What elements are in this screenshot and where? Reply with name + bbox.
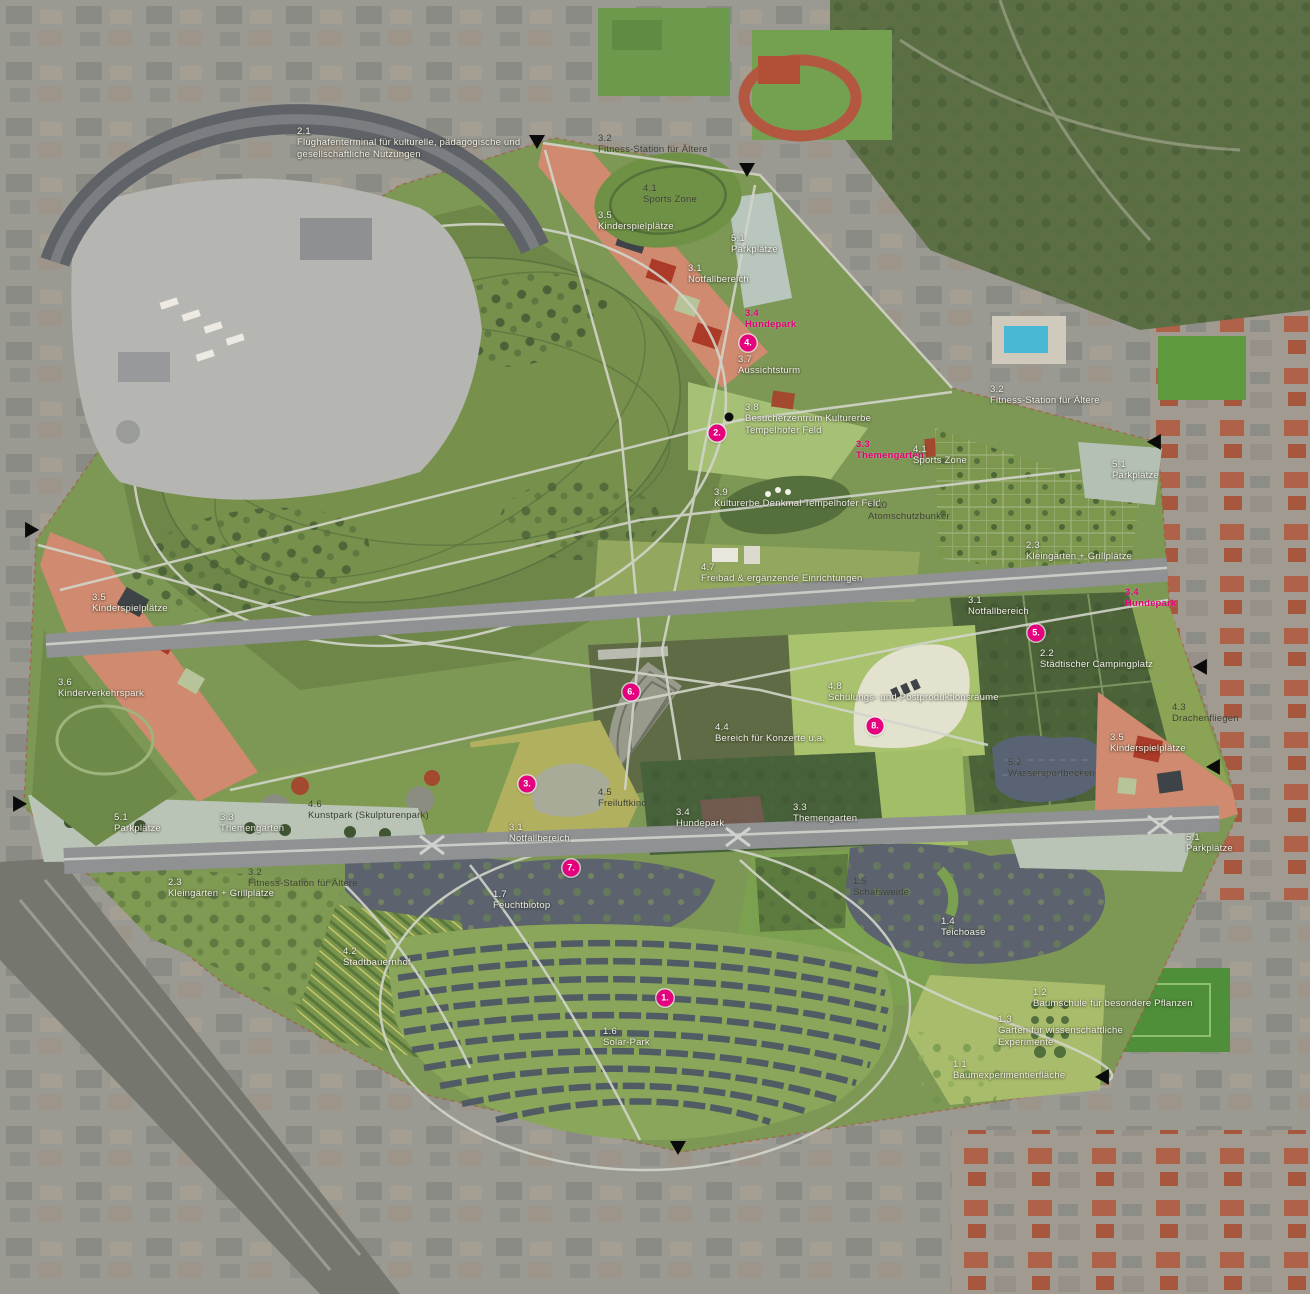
zone-label-1-5: 1.5Schafsweide [853,876,909,899]
zone-label-2-3: 2.3Kleingärten + Grillplätze [1026,540,1132,563]
zone-name: Bereich für Konzerte u.a. [715,733,825,744]
zone-code: 3.3 [220,812,284,823]
zone-name: Parkplätze [731,244,778,255]
numbered-marker[interactable]: 8. [867,718,884,735]
zone-label-3-1: 3.1Notfallbereich [968,595,1029,618]
zone-label-3-6: 3.6Kinderverkehrspark [58,677,144,700]
zone-label-5-1: 5.1Parkplätze [1186,832,1233,855]
zone-name: Garten für wissenschaftliche Experimente [998,1025,1123,1047]
zone-name: Parkplätze [1186,843,1233,854]
zone-label-1-1: 1.1Baumexperimentierfläche [953,1059,1065,1082]
zone-code: 1.1 [953,1059,1065,1070]
zone-label-3-10: 3.10Atomschutzbunker [868,500,950,523]
zone-code: 4.3 [1172,702,1239,713]
zone-label-4-3: 4.3Drachenfliegen [1172,702,1239,725]
zone-name: Atomschutzbunker [868,511,950,522]
zone-label-3-8: 3.8Besucherzentrum Kulturerbe Tempelhofe… [745,402,910,436]
zone-label-2-2: 2.2Städtischer Campingplatz [1040,648,1153,671]
zone-name: Drachenfliegen [1172,713,1239,724]
zone-code: 1.6 [603,1026,650,1037]
zone-name: Themengarten [793,813,857,824]
zone-code: 5.1 [731,233,778,244]
zone-name: Kleingärten + Grillplätze [168,888,274,899]
zone-label-3-5: 3.5Kinderspielplätze [598,210,674,233]
boundary-marker-icon [1206,759,1220,775]
zone-code: 1.2 [1033,987,1193,998]
zone-label-4-6: 4.6Kunstpark (Skulpturenpark) [308,799,429,822]
zone-name: Fitness-Station für Ältere [598,144,708,155]
numbered-marker[interactable]: 5. [1028,625,1045,642]
zone-code: 4.2 [343,946,411,957]
zone-code: 4.6 [308,799,429,810]
zone-name: Kleingärten + Grillplätze [1026,551,1132,562]
boundary-marker-icon [13,796,27,812]
zone-name: Parkplätze [1112,470,1159,481]
numbered-marker[interactable]: 2. [709,425,726,442]
numbered-marker[interactable]: 1. [657,990,674,1007]
zone-name: Wassersportbecken [1008,768,1095,779]
zone-code: 3.4 [676,807,724,818]
zone-label-3-3: 3.3Themengarten [793,802,857,825]
zone-label-3-3: 3.3Themengarten [220,812,284,835]
zone-name: Fitness-Station für Ältere [248,878,358,889]
zone-label-5-1: 5.1Parkplätze [114,812,161,835]
zone-code: 3.6 [58,677,144,688]
numbered-marker[interactable]: 4. [740,335,757,352]
zone-code: 4.1 [643,183,697,194]
zone-name: Freibad & ergänzende Einrichtungen [701,573,863,584]
zone-name: Aussichtsturm [738,365,800,376]
zone-name: Feuchtbiotop [493,900,550,911]
numbered-marker[interactable]: 7. [563,860,580,877]
zone-code: 3.8 [745,402,910,413]
zone-code: 4.1 [913,444,967,455]
zone-name: Flughafenterminal für kulturelle, pädago… [297,137,520,159]
zone-label-4-4: 4.4Bereich für Konzerte u.a. [715,722,825,745]
zone-code: 3.5 [1110,732,1186,743]
zone-name: Teichoase [941,927,986,938]
zone-code: 3.5 [598,210,674,221]
zone-code: 5.1 [114,812,161,823]
boundary-marker-icon [670,1141,686,1155]
zone-name: Städtischer Campingplatz [1040,659,1153,670]
zone-code: 3.7 [738,354,800,365]
zone-label-4-2: 4.2Stadtbauernhof [343,946,411,969]
zone-code: 1.5 [853,876,909,887]
boundary-marker-icon [739,163,755,177]
zone-name: Hundepark [1125,598,1176,609]
zone-name: Notfallbereich [968,606,1029,617]
numbered-marker[interactable]: 6. [623,684,640,701]
zone-code: 5.1 [1186,832,1233,843]
zone-code: 2.3 [1026,540,1132,551]
zone-label-4-5: 4.5Freiluftkino [598,787,647,810]
zone-code: 3.2 [990,384,1100,395]
zone-label-3-4: 3.4Hundepark [1125,587,1176,610]
zone-code: 3.2 [598,133,708,144]
zone-code: 1.3 [998,1014,1173,1025]
numbered-marker[interactable]: 3. [519,776,536,793]
zone-code: 3.4 [745,308,796,319]
zone-label-4-1: 4.1Sports Zone [643,183,697,206]
zone-name: Hundepark [745,319,796,330]
zone-label-3-4: 3.4Hundepark [745,308,796,331]
zone-name: Notfallbereich [688,274,749,285]
zone-label-1-2: 1.2Baumschule für besondere Pflanzen [1033,987,1193,1010]
zone-label-3-5: 3.5Kinderspielplätze [1110,732,1186,755]
zone-name: Kinderverkehrspark [58,688,144,699]
zone-name: Besucherzentrum Kulturerbe Tempelhofer F… [745,413,871,435]
zone-label-3-9: 3.9Kulturerbe Denkmal Tempelhofer Feld [714,487,881,510]
zone-code: 4.4 [715,722,825,733]
zone-label-3-1: 3.1Notfallbereich [509,822,570,845]
zone-label-3-4: 3.4Hundepark [676,807,724,830]
zone-name: Kinderspielplätze [1110,743,1186,754]
zone-label-5-1: 5.1Parkplätze [1112,459,1159,482]
zone-name: Themengarten [220,823,284,834]
zone-label-1-7: 1.7Feuchtbiotop [493,889,550,912]
zone-name: Parkplätze [114,823,161,834]
zone-label-3-1: 3.1Notfallbereich [688,263,749,286]
annotation-layer: 2.1Flughafenterminal für kulturelle, päd… [0,0,1310,1294]
boundary-marker-icon [25,522,39,538]
zone-label-3-7: 3.7Aussichtsturm [738,354,800,377]
zone-label-3-5: 3.5Kinderspielplätze [92,592,168,615]
zone-code: 3.1 [968,595,1029,606]
zone-code: 3.10 [868,500,950,511]
zone-name: Stadtbauernhof [343,957,411,968]
zone-name: Kunstpark (Skulpturenpark) [308,810,429,821]
zone-label-4-1: 4.1Sports Zone [913,444,967,467]
zone-code: 5.1 [1112,459,1159,470]
zone-label-4-7: 4.7Freibad & ergänzende Einrichtungen [701,562,863,585]
zone-name: Kulturerbe Denkmal Tempelhofer Feld [714,498,881,509]
zone-name: Notfallbereich [509,833,570,844]
zone-name: Schafsweide [853,887,909,898]
zone-label-1-6: 1.6Solar-Park [603,1026,650,1049]
zone-name: Sports Zone [643,194,697,205]
zone-code: 3.1 [688,263,749,274]
boundary-marker-icon [1193,659,1207,675]
zone-label-3-2: 3.2Fitness-Station für Ältere [598,133,708,156]
zone-code: 2.2 [1040,648,1153,659]
zone-label-1-4: 1.4Teichoase [941,916,986,939]
zone-code: 1.4 [941,916,986,927]
zone-code: 1.7 [493,889,550,900]
zone-code: 5.2 [1008,757,1095,768]
zone-label-5-2: 5.2Wassersportbecken [1008,757,1095,780]
zone-name: Baumschule für besondere Pflanzen [1033,998,1193,1009]
zone-label-1-3: 1.3Garten für wissenschaftliche Experime… [998,1014,1173,1048]
boundary-marker-icon [1095,1069,1109,1085]
zone-code: 3.4 [1125,587,1176,598]
zone-label-5-1: 5.1Parkplätze [731,233,778,256]
zone-name: Kinderspielplätze [92,603,168,614]
zone-code: 3.1 [509,822,570,833]
map-canvas[interactable]: 2.1Flughafenterminal für kulturelle, päd… [0,0,1310,1294]
zone-name: Kinderspielplätze [598,221,674,232]
zone-name: Freiluftkino [598,798,647,809]
zone-name: Sports Zone [913,455,967,466]
zone-name: Baumexperimentierfläche [953,1070,1065,1081]
zone-label-3-2: 3.2Fitness-Station für Ältere [990,384,1100,407]
poi-dot-icon [725,413,734,422]
zone-name: Fitness-Station für Ältere [990,395,1100,406]
zone-label-3-2: 3.2Fitness-Station für Ältere [248,867,358,890]
zone-code: 4.8 [828,681,999,692]
zone-name: Solar-Park [603,1037,650,1048]
zone-code: 3.5 [92,592,168,603]
zone-code: 4.5 [598,787,647,798]
zone-name: Schulungs- und Postproduktionsräume [828,692,999,703]
zone-code: 3.3 [793,802,857,813]
zone-code: 4.7 [701,562,863,573]
zone-code: 3.2 [248,867,358,878]
zone-code: 3.9 [714,487,881,498]
boundary-marker-icon [529,135,545,149]
zone-label-4-8: 4.8Schulungs- und Postproduktionsräume [828,681,999,704]
zone-name: Hundepark [676,818,724,829]
boundary-marker-icon [1147,434,1161,450]
